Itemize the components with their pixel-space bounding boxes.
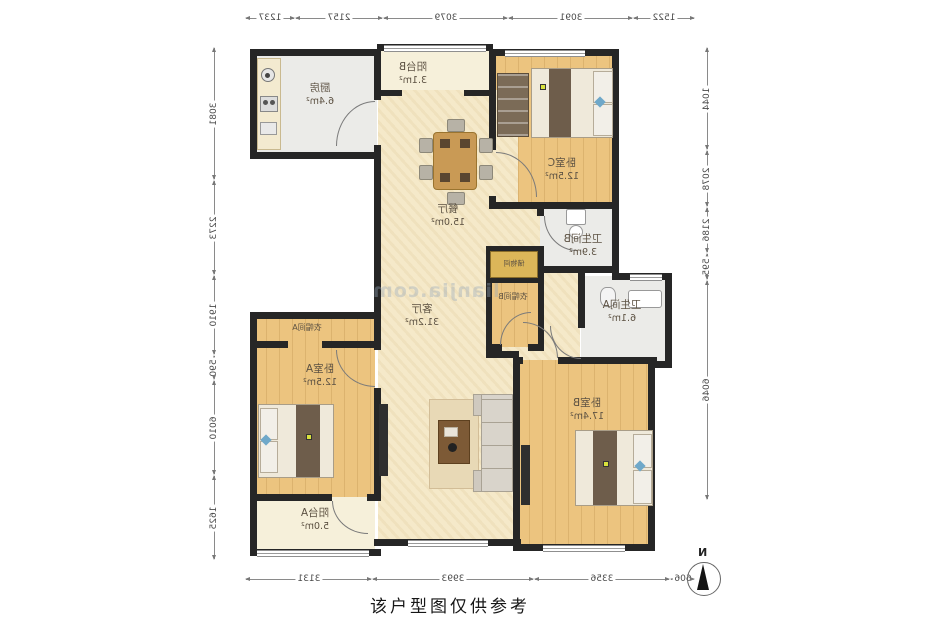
chair bbox=[479, 165, 493, 180]
chair bbox=[479, 138, 493, 153]
pillow bbox=[593, 104, 613, 136]
table-item bbox=[444, 427, 458, 437]
dimension-value: 1625 bbox=[209, 504, 219, 531]
room-label-bedroom-b: 卧室B 17.4m² bbox=[570, 397, 604, 423]
dimension-segment: 3079 bbox=[383, 11, 508, 25]
chair bbox=[419, 138, 433, 153]
placemat bbox=[460, 173, 470, 182]
room-name: 卧室B bbox=[570, 397, 604, 411]
bed-detail bbox=[306, 434, 312, 440]
pillow bbox=[633, 470, 652, 504]
wall bbox=[250, 152, 381, 159]
wall bbox=[250, 494, 332, 501]
sofa-arm bbox=[473, 394, 482, 416]
wall bbox=[578, 273, 585, 328]
room-label-dining: 餐厅 15.0m² bbox=[431, 203, 465, 229]
room-label-bedroom-a: 卧室A 12.5m² bbox=[303, 363, 337, 389]
placemat bbox=[440, 139, 450, 148]
wall bbox=[537, 266, 617, 273]
dimension-value: 6046 bbox=[702, 377, 712, 404]
placemat bbox=[460, 139, 470, 148]
dimension-value: 3131 bbox=[295, 574, 322, 584]
room-name: 餐厅 bbox=[431, 203, 465, 217]
wall bbox=[250, 49, 381, 56]
room-name: 卧室C bbox=[545, 157, 579, 171]
dimension-value: 2157 bbox=[326, 13, 353, 23]
dimension-segment: 2157 bbox=[295, 11, 383, 25]
wall bbox=[489, 202, 619, 209]
dimension-value: 1237 bbox=[257, 13, 284, 23]
room-name: 卫生间B bbox=[564, 233, 603, 247]
wardrobe bbox=[497, 73, 529, 137]
wall bbox=[612, 49, 619, 280]
room-label-bedroom-c: 卧室C 12.5m² bbox=[545, 157, 579, 183]
dimension-value: 595 bbox=[702, 256, 712, 277]
stove-burner bbox=[270, 100, 275, 105]
page-caption: 该户型图仅供参考 bbox=[230, 592, 670, 617]
dimension-segment: 590 bbox=[207, 355, 221, 380]
wall bbox=[322, 341, 381, 348]
room-name: 衣帽间B bbox=[498, 292, 528, 302]
wall bbox=[250, 312, 381, 319]
stove-burner bbox=[263, 100, 268, 105]
wall bbox=[537, 202, 544, 216]
wall bbox=[250, 312, 257, 556]
bed-detail bbox=[603, 461, 609, 467]
window bbox=[408, 540, 488, 547]
room-name: 储物间 bbox=[504, 259, 525, 268]
room-area: 15.0m² bbox=[431, 217, 465, 229]
window bbox=[384, 45, 486, 52]
room-area: 31.2m² bbox=[405, 317, 439, 329]
dimension-segment: 2186 bbox=[700, 207, 714, 253]
room-name: 阳台B bbox=[399, 61, 427, 75]
room-label-closet-b: 衣帽间B bbox=[498, 292, 528, 302]
dimension-value: 1044 bbox=[702, 85, 712, 112]
sofa-arm bbox=[473, 470, 482, 492]
dimension-value: 3356 bbox=[589, 574, 616, 584]
window bbox=[505, 50, 585, 57]
pillow bbox=[593, 71, 613, 103]
floor-plan-page: 1237 2157 3079 3091 1522 3131 3993 3356 … bbox=[0, 0, 927, 630]
room-area: 5.0m² bbox=[301, 521, 329, 533]
wall bbox=[367, 494, 381, 501]
compass-needle-icon bbox=[697, 564, 709, 590]
room-area: 6.1m² bbox=[603, 313, 642, 325]
room-label-bathroom-b: 卫生间B 3.9m² bbox=[564, 233, 603, 259]
wall bbox=[374, 145, 381, 159]
dimension-segment: 3081 bbox=[207, 47, 221, 180]
wall bbox=[250, 341, 288, 348]
dimension-segment: 3091 bbox=[508, 11, 633, 25]
room-area: 3.1m² bbox=[399, 75, 427, 87]
chair bbox=[447, 119, 465, 132]
dimension-value: 3079 bbox=[432, 13, 459, 23]
window bbox=[543, 545, 625, 552]
room-label-balcony-b: 阳台B 3.1m² bbox=[399, 61, 427, 87]
dimension-segment: 595 bbox=[700, 253, 714, 280]
wall bbox=[374, 90, 402, 96]
kitchen-appliance bbox=[260, 122, 277, 135]
dimension-value: 6010 bbox=[209, 414, 219, 441]
dimension-value: 2186 bbox=[702, 217, 712, 244]
dimension-segment: 3993 bbox=[372, 572, 534, 586]
wall bbox=[665, 273, 672, 368]
dimension-segment: 6010 bbox=[207, 380, 221, 475]
dimension-value: 3091 bbox=[557, 13, 584, 23]
bed-detail bbox=[540, 84, 546, 90]
dimension-segment: 1237 bbox=[245, 11, 295, 25]
dimension-value: 3993 bbox=[440, 574, 467, 584]
placemat bbox=[440, 173, 450, 182]
bed-blanket bbox=[549, 69, 571, 137]
bed-blanket bbox=[593, 431, 617, 505]
dimension-value: 2273 bbox=[209, 214, 219, 241]
room-name: 客厅 bbox=[405, 303, 439, 317]
compass-north-label: N bbox=[698, 546, 707, 559]
room-name: 卧室A bbox=[303, 363, 337, 377]
pillow bbox=[260, 408, 278, 440]
pillow bbox=[260, 441, 278, 473]
dimension-segment: 3356 bbox=[534, 572, 670, 586]
tv-cabinet bbox=[521, 445, 530, 505]
dimension-value: 1522 bbox=[651, 13, 678, 23]
room-area: 6.4m² bbox=[306, 96, 334, 108]
bed-blanket bbox=[296, 405, 320, 477]
room-label-closet-a: 衣帽间A bbox=[292, 323, 321, 333]
balcony-b-floor bbox=[379, 47, 491, 93]
dimension-value: 1910 bbox=[209, 302, 219, 329]
watermark: lianjia.com bbox=[372, 280, 500, 302]
wall bbox=[513, 357, 520, 551]
wall bbox=[464, 90, 492, 96]
window bbox=[630, 274, 662, 281]
wall bbox=[486, 344, 502, 351]
room-name: 阳台A bbox=[301, 507, 329, 521]
dimension-segment: 1522 bbox=[633, 11, 695, 25]
room-label-bathroom-a: 卫生间A 6.1m² bbox=[603, 299, 642, 325]
room-label-balcony-a: 阳台A 5.0m² bbox=[301, 507, 329, 533]
wall bbox=[489, 49, 496, 150]
dimension-segment: 1044 bbox=[700, 47, 714, 150]
tv-cabinet bbox=[379, 404, 388, 476]
dimension-segment: 2273 bbox=[207, 180, 221, 275]
room-name: 衣帽间A bbox=[292, 323, 321, 333]
dimension-segment: 6046 bbox=[700, 280, 714, 500]
room-area: 12.5m² bbox=[545, 171, 579, 183]
room-label-storage: 储物间 bbox=[504, 259, 525, 268]
sink-drain bbox=[265, 73, 270, 78]
dimension-segment: 3131 bbox=[245, 572, 372, 586]
dimension-segment: 2078 bbox=[700, 150, 714, 207]
wall bbox=[250, 49, 257, 159]
room-name: 厨房 bbox=[306, 82, 334, 96]
room-name: 卫生间A bbox=[603, 299, 642, 313]
window bbox=[257, 550, 369, 557]
table-item bbox=[448, 443, 457, 452]
dimension-value: 3081 bbox=[209, 100, 219, 127]
room-label-kitchen: 厨房 6.4m² bbox=[306, 82, 334, 108]
room-label-living: 客厅 31.2m² bbox=[405, 303, 439, 329]
chair bbox=[419, 165, 433, 180]
dimension-segment: 1910 bbox=[207, 275, 221, 355]
dimension-segment: 1625 bbox=[207, 475, 221, 560]
dimension-value: 2078 bbox=[702, 165, 712, 192]
sofa bbox=[481, 394, 513, 492]
room-area: 3.9m² bbox=[564, 247, 603, 259]
toilet-tank bbox=[566, 209, 586, 225]
room-area: 17.4m² bbox=[570, 411, 604, 423]
dimension-value: 590 bbox=[209, 357, 219, 378]
wall bbox=[374, 312, 381, 350]
room-area: 12.5m² bbox=[303, 377, 337, 389]
